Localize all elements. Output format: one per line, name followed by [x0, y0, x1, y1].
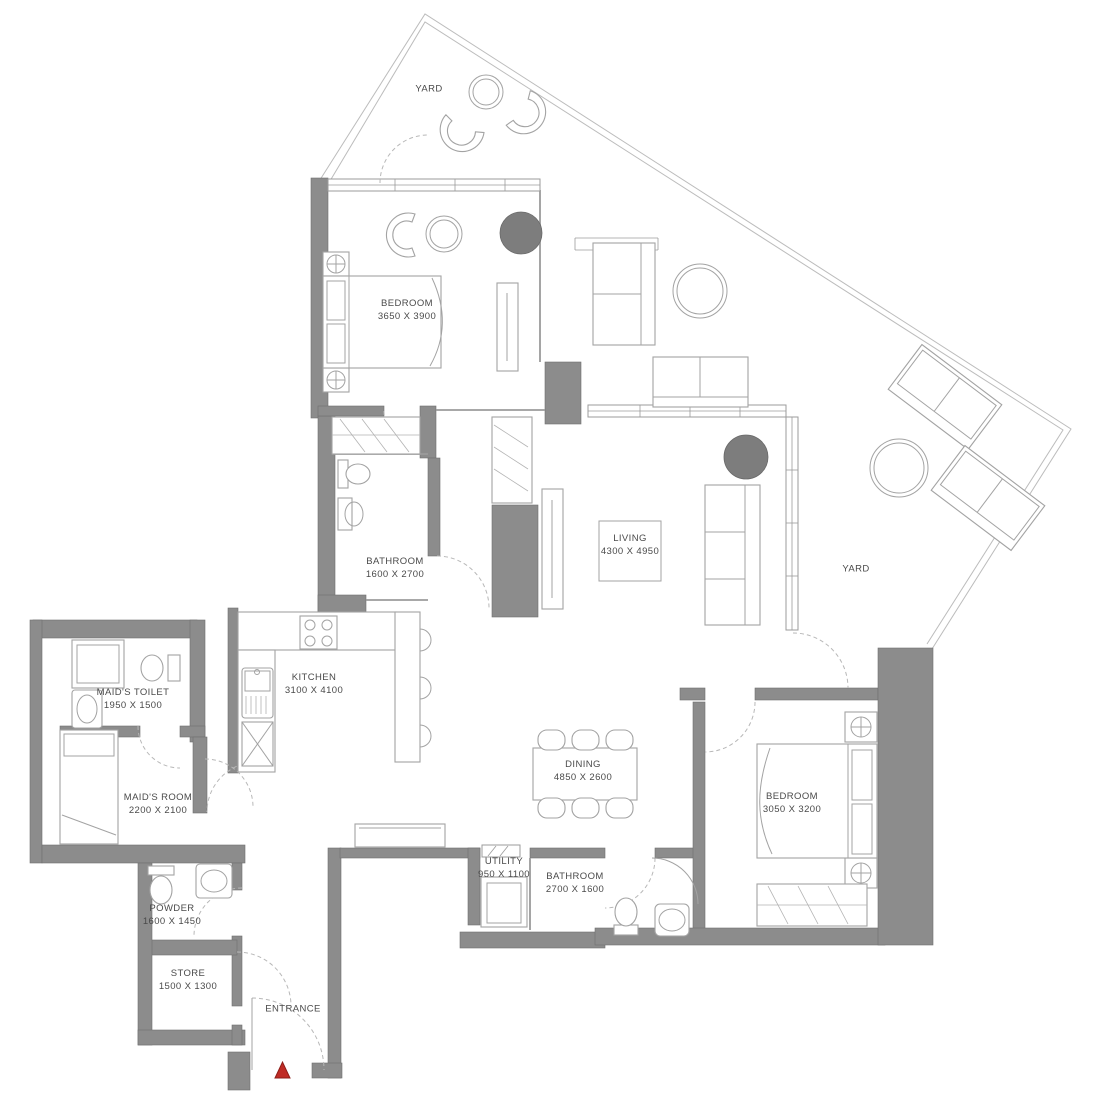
- door-store: [237, 952, 291, 1006]
- washbasin-icon: [655, 904, 689, 936]
- room-label-yard-top: YARD: [415, 84, 442, 97]
- room-label-powder: POWDER 1600 X 1450: [143, 903, 201, 929]
- outdoor-chair-icon: [433, 114, 485, 158]
- maids-room-furniture: [60, 730, 118, 844]
- sink-icon: [242, 668, 273, 718]
- stool-icon: [420, 677, 431, 699]
- room-label-maids-toilet: MAID'S TOILET 1950 X 1500: [97, 687, 170, 713]
- round-chair-icon: [673, 264, 727, 318]
- entrance-marker-icon: [275, 1062, 290, 1078]
- chair-icon: [572, 798, 599, 818]
- outdoor-sofa-icon: [593, 243, 655, 345]
- stool-icon: [420, 629, 431, 651]
- washbasin-icon: [196, 864, 232, 898]
- washing-machine-icon: [481, 877, 527, 927]
- bathroom-1-fixtures: [338, 460, 370, 530]
- powder-fixtures: [148, 864, 232, 904]
- side-table-dark-icon: [500, 212, 542, 254]
- toilet-icon: [614, 898, 638, 935]
- chair-icon: [538, 730, 565, 750]
- door-bedroom-2: [705, 702, 755, 752]
- room-label-utility: UTILITY 950 X 1100: [478, 856, 530, 882]
- tv-console-icon: [542, 489, 563, 609]
- toilet-icon: [141, 655, 180, 681]
- chair-icon: [538, 798, 565, 818]
- window-utility: [482, 845, 520, 857]
- console-icon: [355, 824, 445, 847]
- room-label-maids-room: MAID'S ROOM 2200 X 2100: [124, 792, 193, 818]
- outdoor-sofa-icon: [888, 345, 1002, 450]
- outdoor-sofa-icon: [931, 446, 1045, 551]
- outdoor-table-icon: [870, 439, 928, 497]
- bedroom-2-furniture: [757, 712, 877, 926]
- stove-icon: [300, 616, 337, 649]
- toilet-icon: [338, 460, 370, 488]
- dishwasher-icon: [242, 722, 273, 766]
- room-label-bathroom-1: BATHROOM 1600 X 2700: [366, 556, 424, 582]
- terrace-furniture: [593, 243, 748, 407]
- room-label-bedroom-2: BEDROOM 3050 X 3200: [763, 791, 821, 817]
- floor-plan-drawing: [0, 0, 1093, 1100]
- sofa-icon: [705, 485, 760, 625]
- walls: [30, 178, 933, 1090]
- door-yard-top: [380, 135, 428, 183]
- living-furniture: [542, 435, 768, 625]
- window-bedroom-1: [328, 179, 540, 191]
- room-label-bedroom-1: BEDROOM 3650 X 3900: [378, 298, 436, 324]
- yard-top-furniture: [433, 75, 554, 159]
- window-living-right: [786, 417, 798, 630]
- room-label-kitchen: KITCHEN 3100 X 4100: [285, 672, 343, 698]
- bathroom-2-fixtures: [614, 858, 698, 936]
- room-label-store: STORE 1500 X 1300: [159, 968, 217, 994]
- outdoor-sofa-icon: [653, 357, 748, 407]
- room-label-living: LIVING 4300 X 4950: [601, 533, 659, 559]
- chair-icon: [606, 730, 633, 750]
- door-yard-living: [793, 633, 848, 688]
- room-label-bathroom-2: BATHROOM 2700 X 1600: [546, 871, 604, 897]
- room-label-dining: DINING 4850 X 2600: [554, 759, 612, 785]
- hall-closet-icon: [492, 417, 532, 503]
- yard-right-furniture: [870, 345, 1045, 551]
- island-counter: [395, 612, 420, 762]
- wardrobe-icon: [757, 884, 867, 926]
- maids-toilet-fixtures: [72, 640, 180, 728]
- single-bed-icon: [60, 730, 118, 844]
- dresser-icon: [497, 283, 518, 371]
- stool-icon: [420, 725, 431, 747]
- outdoor-table-icon: [469, 75, 503, 109]
- outdoor-chair-icon: [506, 90, 555, 142]
- toilet-icon: [148, 866, 174, 904]
- door-maids-toilet: [138, 726, 180, 768]
- coffee-table-dark-icon: [724, 435, 768, 479]
- room-label-entrance: ENTRANCE: [265, 1004, 320, 1017]
- armchair-icon: [386, 213, 415, 257]
- shower-icon: [72, 640, 124, 688]
- utility-fixtures: [481, 877, 527, 927]
- chair-icon: [572, 730, 599, 750]
- floor-plan: YARD BEDROOM 3650 X 3900 LIVING 4300 X 4…: [0, 0, 1093, 1100]
- door-bathroom-1: [437, 556, 489, 608]
- room-label-yard-right: YARD: [842, 564, 869, 577]
- wardrobe-icon: [332, 417, 420, 454]
- round-table-icon: [426, 216, 462, 252]
- washbasin-icon: [338, 498, 363, 530]
- chair-icon: [606, 798, 633, 818]
- shower-screen-icon: [652, 858, 698, 904]
